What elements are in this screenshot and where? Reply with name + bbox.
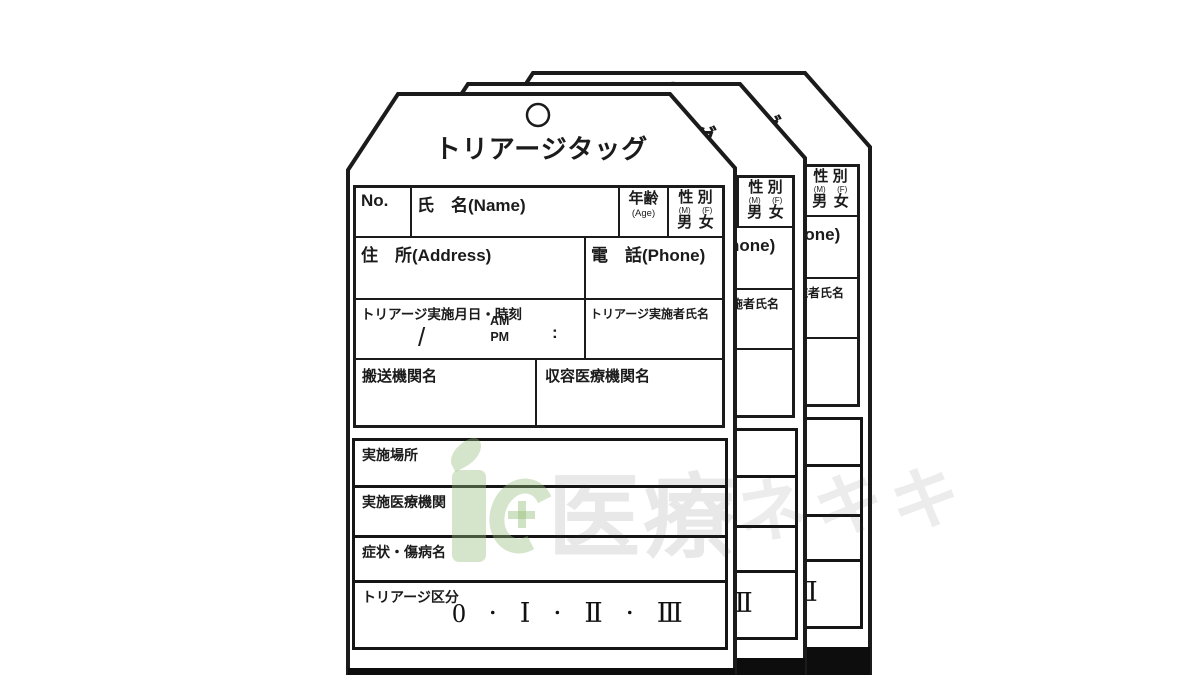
field-name: 氏 名(Name): [412, 188, 620, 236]
institution-label: 実施医療機関: [362, 494, 446, 510]
category-1: Ⅰ: [520, 598, 531, 629]
field-sex: 性 別 (M) (F) 男 女: [739, 178, 792, 226]
sex-female: 女: [834, 194, 849, 210]
row-triage-time: トリアージ実施月日・時刻 / AM PM : トリアージ実施者氏名: [356, 300, 722, 360]
category-dot: ・: [550, 603, 564, 623]
phone-label: 電 話(Phone): [591, 246, 705, 265]
site-label: 実施場所: [362, 447, 418, 463]
field-category: トリアージ区分 0 ・ Ⅰ ・ Ⅱ ・ Ⅲ: [355, 583, 725, 647]
detail-table: 実施場所 実施医療機関 症状・傷病名 トリアージ区分 0 ・ Ⅰ ・ Ⅱ ・ Ⅲ: [352, 438, 728, 650]
sex-options: 男 女: [670, 215, 721, 231]
sex-male: 男: [677, 215, 692, 231]
category-3: Ⅲ: [657, 598, 683, 629]
category-2: Ⅱ: [584, 598, 602, 629]
category-dot: ・: [623, 603, 637, 623]
sex-options: 男 女: [740, 205, 791, 221]
tag-bottom-black-bar: [348, 668, 735, 675]
age-sublabel: (Age): [621, 208, 666, 219]
field-address: 住 所(Address): [356, 238, 586, 298]
sex-options: 男 女: [805, 194, 856, 210]
sex-male: 男: [747, 205, 762, 221]
examiner-label: トリアージ実施者氏名: [590, 307, 709, 321]
field-hospital: 収容医療機関名: [537, 360, 722, 425]
field-symptoms: 症状・傷病名: [355, 538, 725, 583]
string-hole: [527, 104, 549, 126]
row-contact: 住 所(Address) 電 話(Phone): [356, 238, 722, 300]
field-age: 年齢 (Age): [620, 188, 669, 236]
time-colon: :: [552, 323, 558, 343]
sex-label: 性 別: [740, 180, 791, 196]
screen: トリアージタッグ No. 氏 名(Name) 年齢 (Age) 性 別 (M): [0, 0, 1200, 675]
row-identity: No. 氏 名(Name) 年齢 (Age) 性 別 (M) (F) 男: [356, 188, 722, 238]
field-site: 実施場所: [355, 441, 725, 488]
hospital-label: 収容医療機関名: [545, 368, 650, 385]
sex-female: 女: [769, 205, 784, 221]
tag-title: トリアージタッグ: [346, 129, 737, 166]
field-sex: 性 別 (M) (F) 男 女: [669, 188, 722, 236]
field-no: No.: [356, 188, 412, 236]
field-triage-datetime: トリアージ実施月日・時刻 / AM PM :: [356, 300, 586, 358]
sex-female: 女: [699, 215, 714, 231]
sex-label: 性 別: [670, 190, 721, 206]
sex-male: 男: [812, 194, 827, 210]
field-carrier: 搬送機関名: [356, 360, 537, 425]
category-dot: ・: [486, 603, 500, 623]
triage-tag: トリアージタッグ No. 氏 名(Name) 年齢 (Age) 性 別 (M): [346, 92, 737, 675]
address-label: 住 所(Address): [361, 246, 491, 265]
date-slash: /: [418, 322, 425, 353]
field-institution: 実施医療機関: [355, 488, 725, 538]
row-organizations: 搬送機関名 収容医療機関名: [356, 360, 722, 425]
symptoms-label: 症状・傷病名: [362, 544, 446, 560]
name-label: 氏 名(Name): [417, 196, 526, 215]
field-examiner: トリアージ実施者氏名: [586, 300, 722, 358]
watermark-text-extra: キ: [880, 437, 971, 550]
age-label: 年齢: [621, 191, 666, 207]
category-0: 0: [452, 598, 466, 629]
category-options: 0 ・ Ⅰ ・ Ⅱ ・ Ⅲ: [450, 598, 685, 629]
sex-label: 性 別: [805, 169, 856, 185]
field-phone: 電 話(Phone): [586, 238, 722, 298]
info-table: No. 氏 名(Name) 年齢 (Age) 性 別 (M) (F) 男: [353, 185, 725, 428]
carrier-label: 搬送機関名: [362, 368, 437, 385]
field-sex: 性 別 (M) (F) 男 女: [804, 167, 857, 215]
am-pm-label: AM PM: [490, 313, 509, 346]
no-label: No.: [361, 191, 388, 210]
category-label: トリアージ区分: [362, 589, 459, 605]
